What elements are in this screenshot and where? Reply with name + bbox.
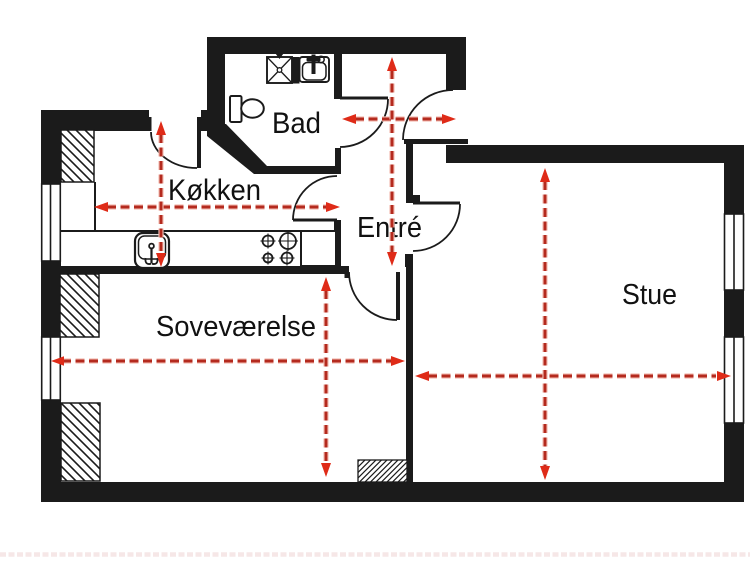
svg-text:Soveværelse: Soveværelse [156, 311, 316, 343]
svg-text:Bad: Bad [272, 107, 321, 140]
svg-text:Stue: Stue [622, 279, 677, 311]
svg-text:Køkken: Køkken [168, 174, 261, 207]
